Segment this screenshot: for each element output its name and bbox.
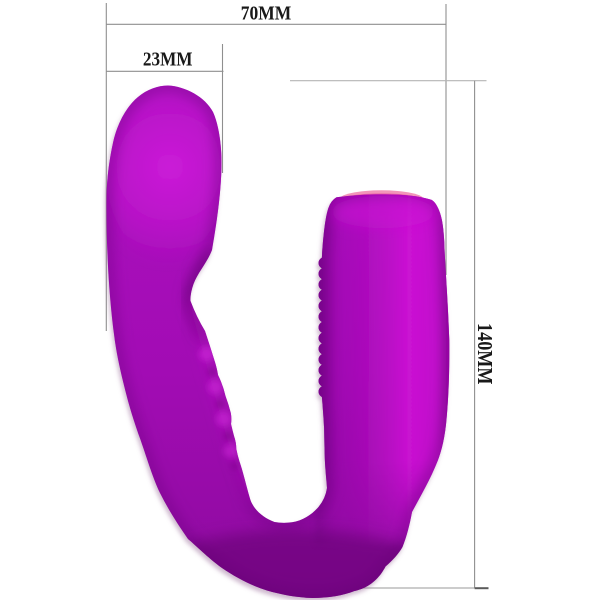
- svg-text:23MM: 23MM: [143, 49, 193, 71]
- svg-text:70MM: 70MM: [241, 2, 292, 24]
- svg-text:140MM: 140MM: [473, 323, 497, 385]
